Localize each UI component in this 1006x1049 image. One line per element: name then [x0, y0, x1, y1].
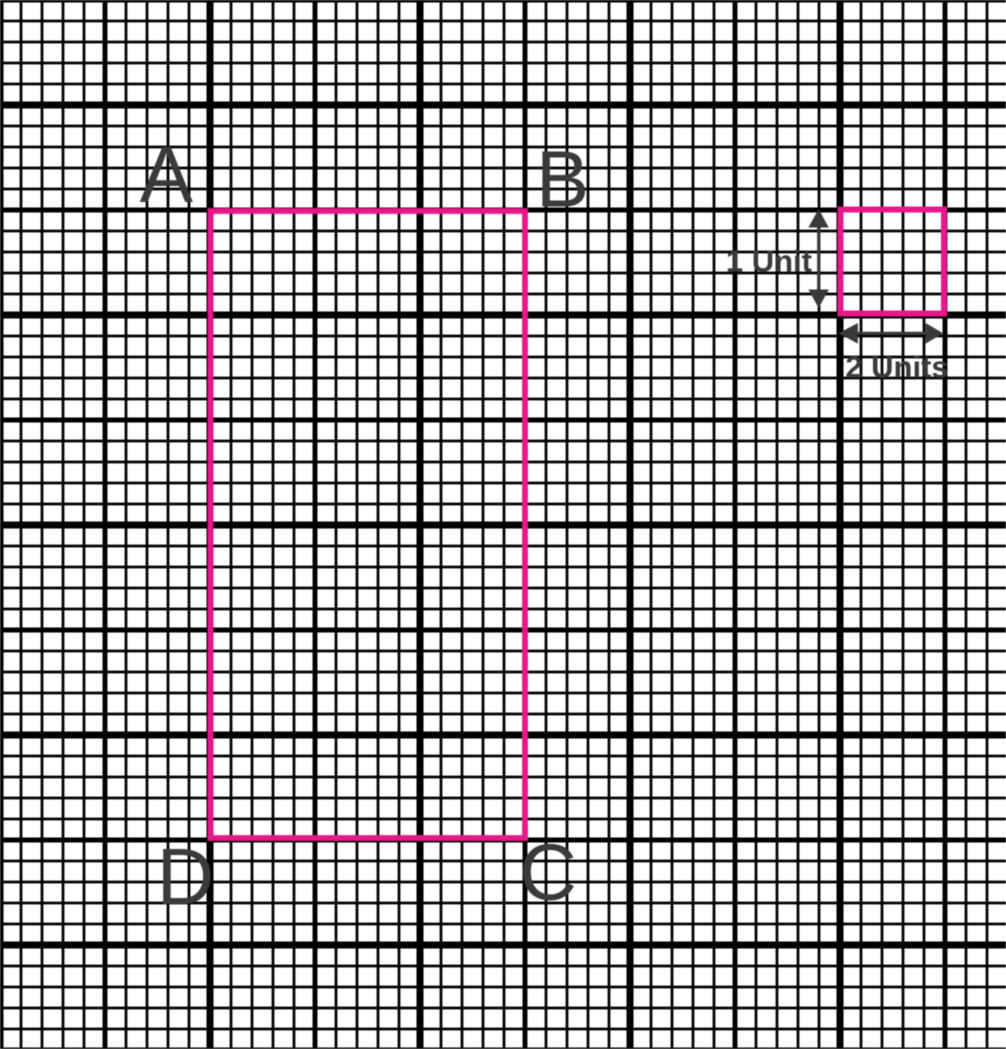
svg-text:A: A: [140, 130, 194, 219]
svg-text:2 Units: 2 Units: [845, 350, 948, 385]
svg-text:C: C: [519, 828, 577, 917]
svg-text:1 Unit: 1 Unit: [726, 244, 812, 279]
svg-text:D: D: [157, 832, 215, 921]
svg-text:B: B: [536, 134, 589, 223]
